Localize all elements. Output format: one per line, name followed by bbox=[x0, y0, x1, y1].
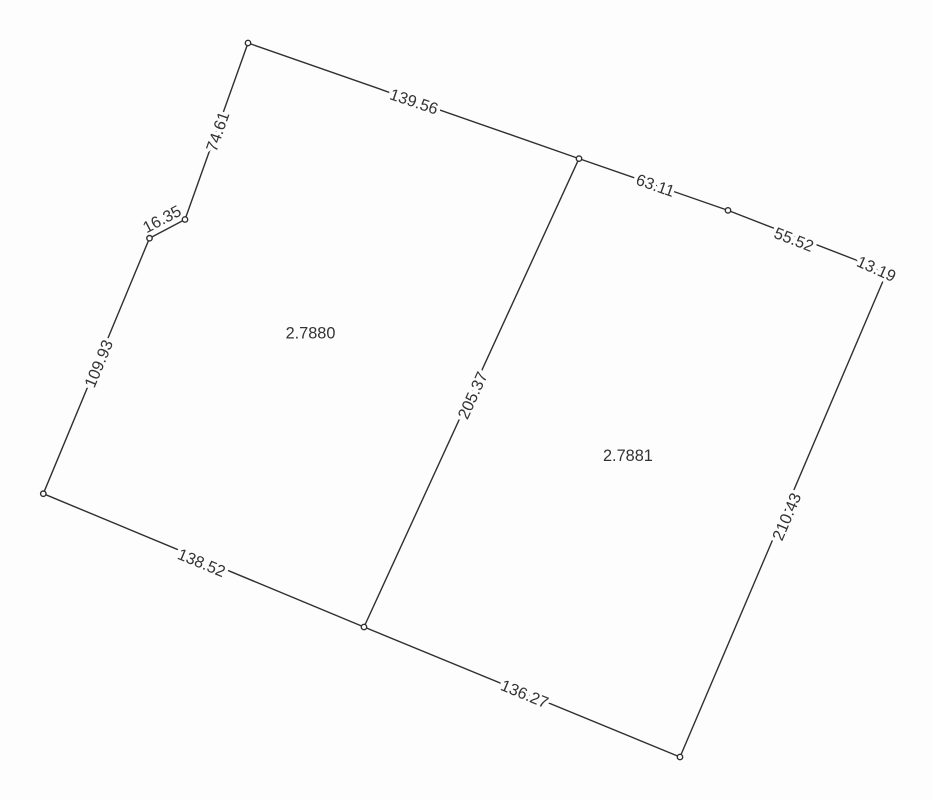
svg-text:2.7880: 2.7880 bbox=[286, 325, 336, 343]
svg-text:2.7881: 2.7881 bbox=[603, 447, 653, 465]
